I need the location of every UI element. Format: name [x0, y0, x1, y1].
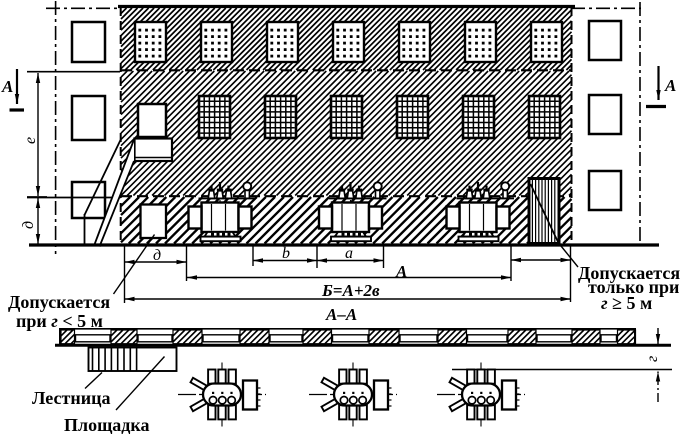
svg-text:a: a — [345, 245, 353, 262]
svg-text:г ≥ 5 м: г ≥ 5 м — [601, 293, 652, 313]
svg-text:А: А — [395, 262, 407, 281]
svg-text:b: b — [282, 245, 290, 262]
svg-text:Б=А+2в: Б=А+2в — [321, 281, 380, 300]
svg-text:г: г — [644, 356, 661, 362]
svg-text:А–А: А–А — [325, 305, 357, 324]
svg-text:д: д — [153, 247, 161, 264]
svg-text:А: А — [664, 76, 676, 95]
svg-text:Лестница: Лестница — [32, 388, 110, 408]
svg-text:Площадка: Площадка — [64, 415, 150, 434]
svg-text:е: е — [22, 137, 39, 144]
svg-text:д: д — [20, 221, 37, 229]
svg-text:А: А — [1, 77, 13, 96]
svg-text:Допускается: Допускается — [8, 292, 110, 312]
